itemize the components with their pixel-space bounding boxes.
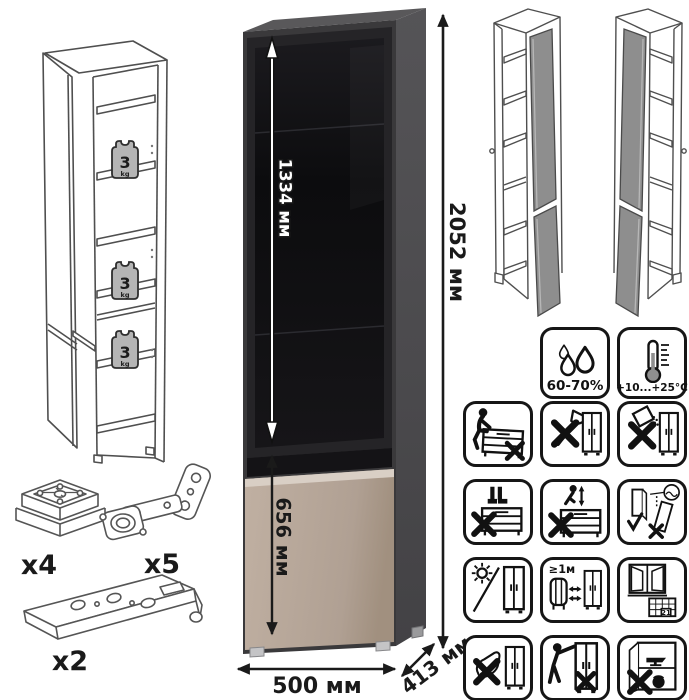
lower-door: [245, 469, 394, 650]
no-pushing-icon: [540, 635, 610, 700]
rail-count: x2: [45, 646, 95, 677]
heat-source-distance-icon: ≥1м: [540, 557, 610, 623]
no-jumping-icon: [540, 479, 610, 545]
wireframe-variant-right: [594, 3, 688, 322]
no-spilling-icon: [617, 401, 687, 467]
temperature-range: +10...+25°C: [616, 383, 688, 394]
cabinet-foot: [376, 641, 390, 651]
hinge-part: [96, 455, 231, 555]
mounting-rail-part: [14, 565, 209, 685]
carry-panels-upright-icon: [617, 479, 687, 545]
shelf-load-weight: 3 kg 3 kg 3 kg: [112, 141, 138, 368]
assembly-diagram: 3 kg 3 kg 3 kg: [0, 0, 689, 700]
no-sitting-icon: [463, 401, 533, 467]
warning-icons: ≥1м 21: [463, 401, 687, 700]
no-standing-icon: [463, 479, 533, 545]
cabinet-side-face: [396, 8, 426, 646]
lower-door-height-label: 656 мм: [272, 497, 295, 576]
cabinet-foot: [250, 647, 264, 657]
svg-text:kg: kg: [121, 360, 130, 368]
hinge-count: x5: [137, 549, 187, 580]
foot-count: x4: [14, 550, 64, 581]
humidity-icon: 60-70%: [540, 327, 610, 399]
no-direct-sunlight-icon: [463, 557, 533, 623]
open-door-bottom: [534, 206, 560, 316]
no-sharp-tools-icon: [540, 401, 610, 467]
depth-label: 413 мм: [396, 631, 470, 699]
shelf-load-unit: kg: [121, 170, 130, 178]
cabinet-wireframe-open-door: 3 kg 3 kg 3 kg: [15, 28, 205, 473]
width-label: 500 мм: [272, 674, 362, 699]
total-height-label: 2052 мм: [445, 202, 469, 302]
upper-door-height-label: 1334 мм: [276, 159, 295, 238]
humidity-range: 60-70%: [547, 380, 604, 394]
open-door-bottom: [616, 206, 642, 316]
water-drops-icon: [547, 338, 603, 380]
min-distance-label: ≥1м: [549, 563, 575, 576]
no-heavy-items-icon: [617, 635, 687, 700]
ventilation-acclimatize-icon: 21: [617, 557, 687, 623]
thermometer-icon: [624, 339, 680, 383]
cabinet-foot: [412, 626, 423, 638]
temperature-icon: +10...+25°C: [617, 327, 687, 399]
svg-text:kg: kg: [121, 291, 130, 299]
acclimatize-days: 21: [661, 608, 671, 617]
no-kicking-icon: [463, 635, 533, 700]
cabinet-product-view: 1334 мм 656 мм 2052 мм 500 мм 413 мм: [230, 0, 470, 700]
wireframe-variant-left: [488, 3, 582, 322]
